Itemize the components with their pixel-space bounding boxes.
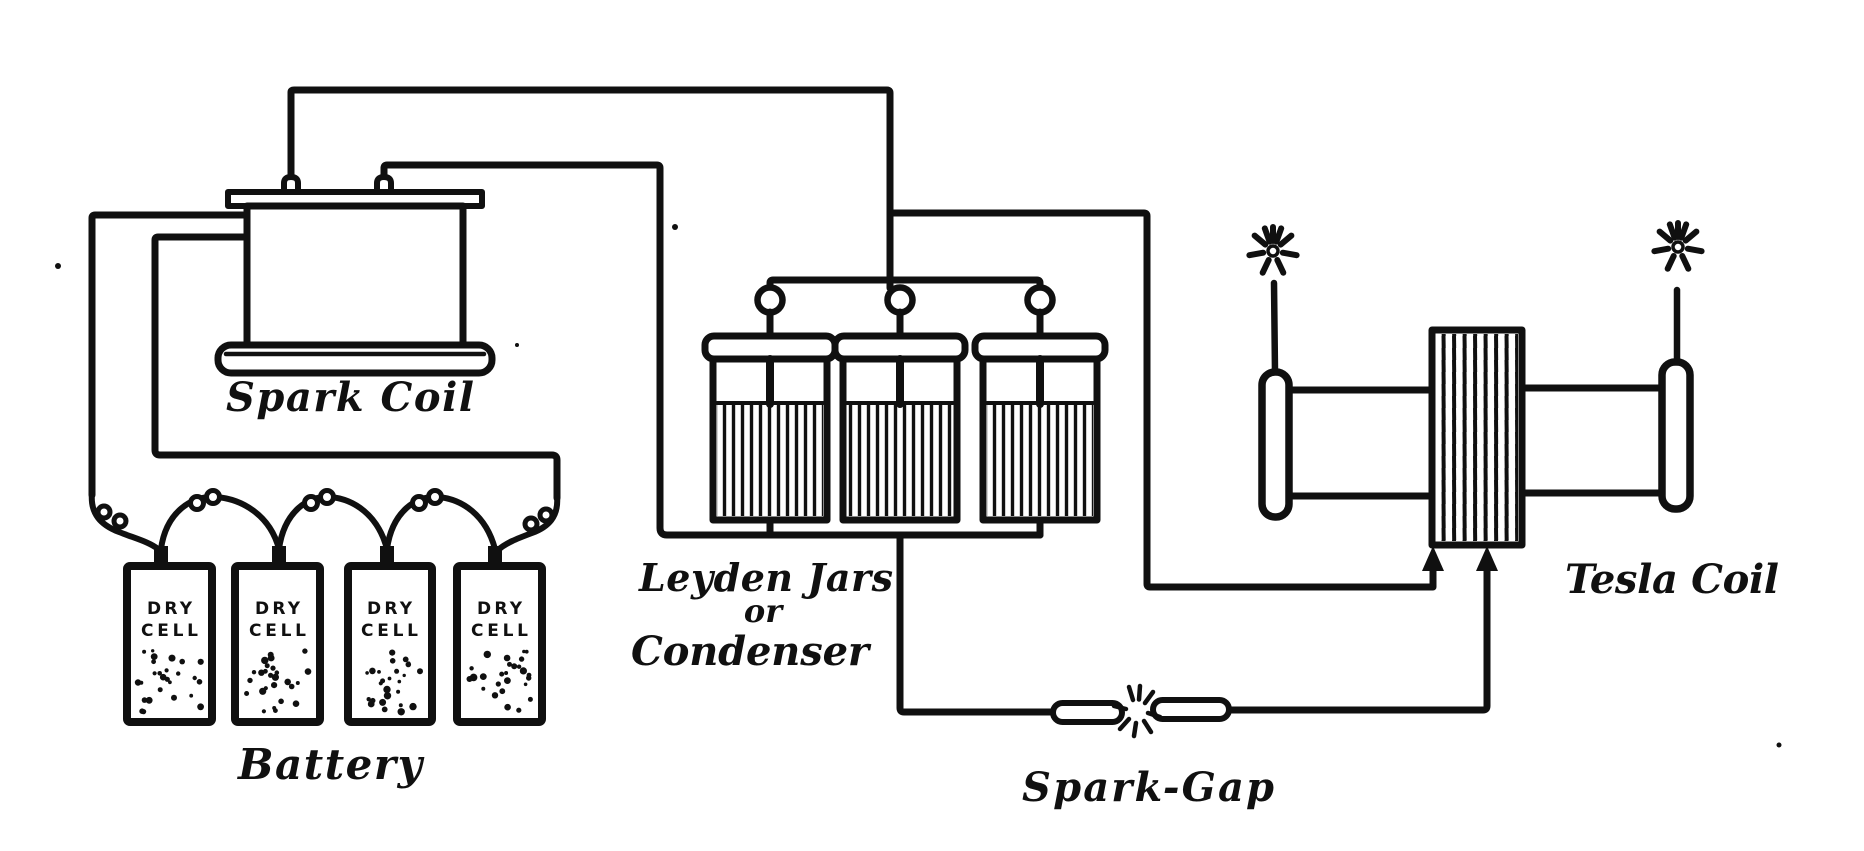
battery-jumper-1 — [161, 497, 279, 549]
battery-jumper-3 — [387, 497, 495, 549]
leyden-jar-1 — [705, 288, 835, 521]
cell-body — [348, 566, 432, 722]
jar-coating-hatch — [717, 403, 823, 516]
battery-label: Battery — [237, 740, 425, 789]
spark-gap-electrode-right — [1153, 700, 1229, 719]
spark-coil-base — [218, 345, 492, 373]
coil-loop — [98, 506, 110, 518]
spark-coil: Spark Coil — [218, 177, 492, 421]
dry-cell-label: DRY — [255, 599, 301, 619]
coil-loop — [207, 491, 220, 504]
coil-loop — [525, 518, 537, 530]
wire-condenser-to-spark-gap — [900, 535, 1053, 712]
spark-gap-label: Spark-Gap — [1022, 764, 1274, 811]
tesla-coil-circuit-diagram: Spark Coil DRY CELL DRY CELL DRY CELL — [0, 0, 1864, 851]
wire-junction-to-primary-left — [890, 213, 1433, 587]
battery: DRY CELL DRY CELL DRY CELL DRY CELL Batt… — [127, 546, 542, 789]
coil-loop — [429, 491, 442, 504]
spark-gap: Spark-Gap — [1022, 686, 1274, 811]
dry-cell-label: DRY — [147, 599, 193, 619]
coil-loop — [191, 497, 204, 510]
dry-cell-label: DRY — [367, 599, 413, 619]
spark-gap-electrode-left — [1053, 703, 1122, 722]
coil-loop — [321, 491, 334, 504]
circuit-diagram-page: Spark Coil DRY CELL DRY CELL DRY CELL — [0, 0, 1864, 851]
tesla-coil-label: Tesla Coil — [1565, 556, 1779, 603]
tesla-coil: Tesla Coil — [1249, 223, 1779, 603]
secondary-end-disc-left — [1262, 372, 1289, 517]
dry-cell-3: DRY CELL — [348, 546, 432, 722]
discharge-rod-left — [1274, 283, 1275, 372]
coil-loop — [305, 497, 318, 510]
jar-coating-hatch — [987, 403, 1093, 516]
arrowhead-primary-right — [1476, 546, 1498, 571]
spark-coil-body — [247, 206, 463, 345]
coil-loop — [114, 515, 126, 527]
dry-cell-4: DRY CELL — [457, 546, 542, 722]
coil-loop — [540, 509, 552, 521]
leyden-jar-2 — [835, 288, 965, 521]
condenser: Leyden Jars or Condenser — [631, 280, 1105, 675]
arrowhead-primary-left — [1422, 546, 1444, 571]
primary-winding-hatch — [1436, 334, 1518, 541]
spark-coil-label: Spark Coil — [226, 374, 474, 421]
battery-jumper-2 — [279, 497, 387, 549]
condenser-label-line2: or — [744, 592, 784, 630]
dry-cell-label: DRY — [477, 599, 523, 619]
condenser-label-line3: Condenser — [631, 628, 872, 675]
coil-loop — [413, 497, 426, 510]
dry-cell-1: DRY CELL — [127, 546, 212, 722]
cell-body — [127, 566, 212, 722]
secondary-end-disc-right — [1662, 362, 1690, 509]
leyden-jar-3 — [975, 288, 1105, 521]
dry-cell-2: DRY CELL — [235, 546, 320, 722]
jar-coating-hatch — [847, 403, 953, 516]
cell-body — [235, 566, 320, 722]
